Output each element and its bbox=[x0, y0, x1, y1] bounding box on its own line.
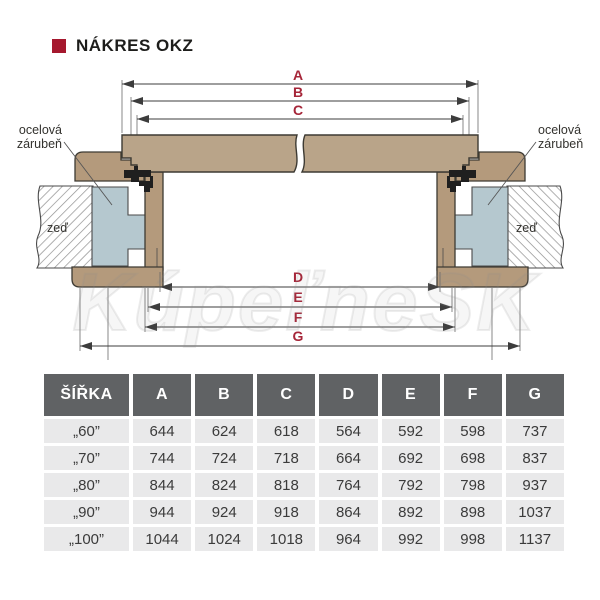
table-cell: 644 bbox=[133, 419, 191, 443]
dim-label-G: G bbox=[293, 328, 304, 344]
table-cell: „60” bbox=[44, 419, 129, 443]
steel-frame-label-right-line1: ocelová bbox=[538, 123, 581, 137]
table-cell: 737 bbox=[506, 419, 564, 443]
dim-label-C: C bbox=[293, 102, 303, 118]
table-cell: „80” bbox=[44, 473, 129, 497]
table-cell: „100” bbox=[44, 527, 129, 551]
page-title-row: NÁKRES OKZ bbox=[52, 36, 193, 56]
wall-label-right: zeď bbox=[516, 221, 537, 235]
table-header-D: D bbox=[319, 374, 377, 416]
table-cell: 944 bbox=[133, 500, 191, 524]
table-header-C: C bbox=[257, 374, 315, 416]
table-cell: 624 bbox=[195, 419, 253, 443]
table-header-B: B bbox=[195, 374, 253, 416]
table-cell: 992 bbox=[382, 527, 440, 551]
table-cell: 1137 bbox=[506, 527, 564, 551]
title-bullet-icon bbox=[52, 39, 66, 53]
wall-label-left: zeď bbox=[47, 221, 68, 235]
table-cell: 964 bbox=[319, 527, 377, 551]
table-header-G: G bbox=[506, 374, 564, 416]
table-cell: 1018 bbox=[257, 527, 315, 551]
dimension-table: ŠÍŘKA A B C D E F G „60” 644 624 618 564… bbox=[44, 374, 564, 551]
steel-frame-label-right-line2: zárubeň bbox=[538, 137, 583, 151]
dim-label-D: D bbox=[293, 269, 303, 285]
table-cell: 698 bbox=[444, 446, 502, 470]
table-cell: 592 bbox=[382, 419, 440, 443]
table-header-E: E bbox=[382, 374, 440, 416]
dim-label-B: B bbox=[293, 84, 303, 100]
table-cell: 598 bbox=[444, 419, 502, 443]
table-cell: 564 bbox=[319, 419, 377, 443]
table-cell: 998 bbox=[444, 527, 502, 551]
frame-section-left bbox=[37, 80, 163, 360]
steel-frame-profile bbox=[92, 187, 146, 266]
table-cell: 892 bbox=[382, 500, 440, 524]
table-cell: 898 bbox=[444, 500, 502, 524]
table-cell: 664 bbox=[319, 446, 377, 470]
table-cell: 824 bbox=[195, 473, 253, 497]
table-cell: 764 bbox=[319, 473, 377, 497]
page: NÁKRES OKZ bbox=[0, 0, 600, 600]
dim-label-A: A bbox=[293, 67, 303, 83]
door-leaf-left bbox=[122, 135, 297, 172]
page-title: NÁKRES OKZ bbox=[76, 36, 193, 56]
table-cell: „90” bbox=[44, 500, 129, 524]
okz-cross-section-diagram: A B C D E F G ocelová zárubeň ocelová zá… bbox=[0, 58, 600, 370]
table-header-F: F bbox=[444, 374, 502, 416]
table-cell: 618 bbox=[257, 419, 315, 443]
table-cell: 1037 bbox=[506, 500, 564, 524]
table-cell: 692 bbox=[382, 446, 440, 470]
table-cell: 1044 bbox=[133, 527, 191, 551]
steel-frame-label-left-line1: ocelová bbox=[19, 123, 62, 137]
table-header-sirka: ŠÍŘKA bbox=[44, 374, 129, 416]
door-leaf-right bbox=[302, 135, 478, 172]
steel-frame-label-left-line2: zárubeň bbox=[17, 137, 62, 151]
table-cell: 718 bbox=[257, 446, 315, 470]
table-cell: 844 bbox=[133, 473, 191, 497]
table-cell: 924 bbox=[195, 500, 253, 524]
table-cell: 864 bbox=[319, 500, 377, 524]
frame-section-right-mirror bbox=[437, 80, 563, 360]
table-cell: 792 bbox=[382, 473, 440, 497]
table-cell: 937 bbox=[506, 473, 564, 497]
table-cell: „70” bbox=[44, 446, 129, 470]
table-cell: 918 bbox=[257, 500, 315, 524]
table-cell: 1024 bbox=[195, 527, 253, 551]
table-header-A: A bbox=[133, 374, 191, 416]
dim-label-F: F bbox=[294, 309, 303, 325]
table-cell: 798 bbox=[444, 473, 502, 497]
casing-bottom-architrave bbox=[72, 267, 163, 287]
table-cell: 837 bbox=[506, 446, 564, 470]
table-cell: 744 bbox=[133, 446, 191, 470]
dim-label-E: E bbox=[293, 289, 302, 305]
table-cell: 724 bbox=[195, 446, 253, 470]
table-cell: 818 bbox=[257, 473, 315, 497]
